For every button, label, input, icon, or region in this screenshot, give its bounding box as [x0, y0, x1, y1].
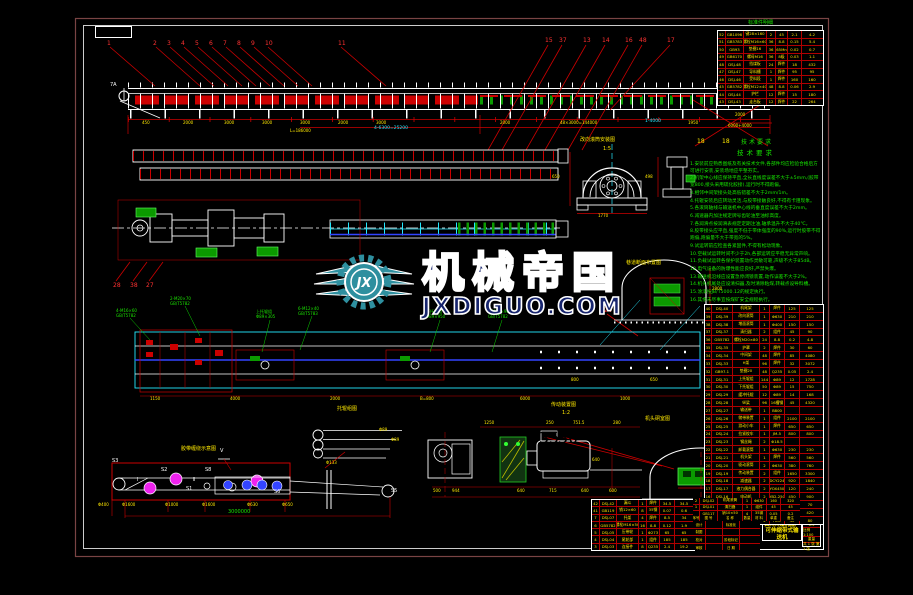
table-cell: 1728	[800, 376, 820, 383]
table-cell	[800, 438, 820, 445]
table-cell: 185	[660, 536, 675, 542]
callout-number: 6	[209, 41, 213, 47]
table-cell: DSJ-35	[712, 344, 733, 351]
callout-number: 4	[181, 41, 185, 47]
table-cell: GB97.1	[712, 368, 733, 375]
table-cell: 标准化	[723, 521, 740, 528]
table-cell: 游动小车	[733, 423, 760, 430]
table-cell: 230	[785, 446, 800, 453]
callout-number: 2	[153, 41, 157, 47]
table-cell: 16槽钢	[770, 399, 785, 406]
dim-label: 4000	[230, 397, 240, 401]
table-cell: 0.02	[788, 46, 802, 53]
table-cell: 18	[705, 478, 712, 485]
note-line: 15.涂漆按JB/T5000.12的规定执行。	[690, 289, 822, 296]
table-cell: 焊件	[770, 305, 785, 312]
table-cell: 14	[785, 391, 800, 398]
dim-label: 498	[645, 175, 653, 179]
table-row: 51GB5783螺栓M16×60368.80.155.4	[718, 38, 823, 46]
table-cell: 23	[705, 438, 712, 445]
table-cell: 0.12	[660, 522, 675, 528]
pulley-diameter: Φ400	[98, 503, 109, 507]
watermark-logo-icon: JX	[312, 252, 416, 312]
table-cell: 21	[705, 454, 712, 461]
table-cell: 8.8	[776, 39, 788, 46]
dim-label: 2000	[330, 397, 340, 401]
table-cell: Φ630	[770, 313, 785, 320]
table-cell: 焊件	[770, 352, 785, 359]
table-row: 39DSJ-39改向滚筒1Φ630210210	[705, 312, 823, 320]
table-cell: DSJ-34	[712, 352, 733, 359]
table-row: 5DSJ-05压带轮1Φ2736565	[592, 528, 694, 535]
table-cell: 45	[781, 505, 800, 511]
table-cell: 数量	[743, 515, 752, 521]
table-cell: 1	[639, 536, 647, 542]
table-cell: 34	[705, 352, 712, 359]
table-cell	[740, 536, 757, 543]
table-cell: 焊件	[647, 500, 660, 506]
table-cell: DSJ-27	[712, 407, 733, 414]
table-cell: GB5782	[726, 84, 744, 91]
watermark: JX 机械帝国 JXDIGUO.COM	[312, 252, 623, 319]
note-line: 6.减速器内加注规定牌号齿轮油至油标高度。	[690, 213, 822, 220]
table-cell: 240	[800, 485, 820, 492]
pulley-diameter: Φ1000	[165, 503, 178, 507]
table-cell: 15	[785, 383, 800, 390]
table-cell: 组件	[770, 470, 785, 477]
table-cell: 125	[800, 305, 820, 312]
table-row: 17DSJ-17液力偶合器2YOX450120240	[705, 484, 823, 492]
table-cell: 920	[785, 478, 800, 485]
table-cell: 缓冲托辊	[733, 391, 760, 398]
table-cell: 设计	[693, 521, 706, 528]
table-cell: 钢丝绳	[733, 438, 760, 445]
table-cell: 2.9	[802, 84, 822, 91]
table-cell: 150	[800, 321, 820, 328]
dim-label: 6000	[520, 397, 530, 401]
table-cell: 受料段	[744, 76, 767, 83]
table-row: 29DSJ-29缓冲托辊12Φ8914168	[705, 390, 823, 398]
table-cell: 50	[718, 46, 726, 53]
table-cell: 5	[592, 529, 600, 535]
small-parts-table: 42DSJ-42漏斗1焊件34.534.541GB119销12×60835钢0.…	[591, 499, 695, 551]
dim-label: 3000	[300, 121, 310, 125]
table-cell: 1	[760, 415, 770, 422]
table-cell: 2.4	[800, 368, 820, 375]
table-cell: GB119	[600, 507, 617, 513]
dim-label: 2000	[338, 121, 348, 125]
table-cell: 650	[785, 423, 800, 430]
table-cell: DSJ-39	[712, 313, 733, 320]
table-row: 序号图 号名 称数量材 料单重备注	[693, 515, 800, 521]
table-cell: 垫圈20	[733, 368, 760, 375]
table-row: 30DSJ-30下托辊组50Φ8915750	[705, 382, 823, 390]
dim-label: 650	[552, 175, 560, 179]
table-row: 20DSJ-20驱动滚筒2Φ630380760	[705, 461, 823, 469]
pulley-label: S2	[161, 468, 167, 473]
table-cell: 2100	[800, 415, 820, 422]
table-cell: DSJ-04	[600, 536, 617, 542]
table-cell: 52	[718, 31, 726, 38]
table-cell: B800	[770, 407, 785, 414]
title-right-cell: 比例 1:100	[803, 527, 820, 536]
table-cell: 焊件	[776, 99, 788, 106]
table-cell: Φ89	[770, 376, 785, 383]
title-block-right: 6.3比例 1:100重量共 1 张 第 1 张	[802, 522, 821, 547]
table-cell: 12	[767, 91, 776, 98]
dim-label: 2000	[735, 113, 745, 117]
bom-table: 40DSJ-40机尾架1焊件12512539DSJ-39改向滚筒1Φ630210…	[704, 304, 824, 525]
table-cell: 0.03	[788, 54, 802, 61]
table-cell: 51	[718, 39, 726, 46]
cad-canvas: JX 机械帝国 JXDIGUO.COM 7A 改向滚筒安装图 1:5 巷道断面布…	[0, 0, 913, 595]
table-cell: 16	[639, 522, 647, 528]
callout-number: 13	[583, 38, 591, 44]
table-cell: DSJ-31	[712, 376, 733, 383]
roller-dim: Φ89	[379, 428, 387, 432]
table-cell: 液力偶合器	[733, 485, 760, 492]
table-cell: 1	[767, 69, 776, 76]
table-cell: 45	[776, 31, 788, 38]
table-cell: GB5782	[600, 522, 617, 528]
table-row: 40DSJ-40机尾架1焊件125125	[705, 305, 823, 312]
table-cell: 组件	[752, 505, 767, 511]
table-cell: 1	[760, 454, 770, 461]
pulley-label: S6	[274, 490, 280, 495]
table-cell: Φ630	[752, 498, 767, 504]
table-cell: 拉紧绞车	[733, 431, 760, 438]
table-cell: 8	[639, 507, 647, 513]
table-cell	[723, 529, 740, 536]
note-line: 14.机头机尾处应设清扫器,及时清除粘煤,转载点设导料槽。	[690, 281, 822, 288]
table-cell: 41	[592, 507, 600, 513]
table-cell: 1.1	[802, 54, 822, 61]
table-cell: 18	[788, 61, 802, 68]
dim-label: 944	[452, 489, 460, 493]
table-cell: 焊件	[776, 69, 788, 76]
table-cell: 35	[705, 344, 712, 351]
table-row: 制图	[693, 528, 760, 536]
pulley-diameter: Φ1600	[122, 503, 135, 507]
note-line: 2.机架中心线应保持平直,全长直线度误差不大于±5mm,(胶带宽800,接头采用…	[690, 175, 822, 189]
table-row: 41GB119销12×60835钢0.070.6	[592, 506, 694, 513]
table-cell: 26	[705, 415, 712, 422]
table-row: 46DSJ-46受料段1焊件160160	[718, 75, 823, 83]
roman-mark: Ⅱ	[193, 478, 195, 483]
belt-title: 胶带缠绕示意图	[181, 447, 216, 452]
callout-number: 27	[146, 283, 154, 289]
note-line: 10.空载试运转时间不少于2h,各部运转应平稳无异常声响。	[690, 251, 822, 258]
table-cell: 尾轮部	[617, 536, 639, 542]
callout-number: 9	[251, 41, 255, 47]
table-cell: 32	[785, 360, 800, 367]
table-cell: Φ273	[647, 529, 660, 535]
table-cell: 49	[718, 54, 726, 61]
title-header-row: 序号图 号名 称数量材 料单重备注	[693, 515, 800, 521]
table-cell: 纵梁	[733, 399, 760, 406]
table-cell: 85	[785, 352, 800, 359]
pulley-diameter: Φ650	[282, 503, 293, 507]
table-cell: 0.2	[785, 336, 800, 343]
table-cell	[785, 438, 800, 445]
table-cell: GB5782	[712, 336, 733, 343]
table-row: 34DSJ-34中间架48焊件854080	[705, 351, 823, 359]
belt-speed-label: V	[220, 449, 223, 454]
table-cell: 增面滚筒	[733, 321, 760, 328]
table-cell	[740, 529, 757, 536]
table-cell: DSJ-40	[712, 305, 733, 312]
table-cell: 1	[760, 305, 770, 312]
table-cell: DSJ-47	[726, 69, 744, 76]
drawing-title: 可伸缩带式输送机	[763, 528, 801, 541]
table-cell: 4320	[800, 399, 820, 406]
table-cell: DSJ-30	[712, 383, 733, 390]
table-cell: H架	[733, 360, 760, 367]
dim-label: 650	[650, 378, 658, 382]
table-row: 1DSJ-01清扫器1组件4545	[693, 504, 800, 511]
dim-label: 640	[517, 489, 525, 493]
table-cell: 185	[675, 536, 693, 542]
table-cell: 46	[718, 76, 726, 83]
callout-number: 38	[130, 283, 138, 289]
pulley-label: S3	[112, 459, 118, 464]
table-cell: 输送带	[733, 407, 760, 414]
table-cell: 45	[785, 329, 800, 336]
table-cell: 230	[800, 446, 820, 453]
table-cell: 审核	[693, 544, 706, 551]
table-cell: 24	[760, 336, 770, 343]
table-cell: 序号	[693, 515, 700, 521]
dim-label: 1150	[150, 397, 160, 401]
table-cell: 1	[767, 76, 776, 83]
table-cell: DSJ-19	[712, 470, 733, 477]
callout-number: 17	[667, 38, 675, 44]
table-row: 42DSJ-42漏斗1焊件34.534.5	[592, 500, 694, 506]
table-cell: 29	[705, 391, 712, 398]
note-line: 8.胶带接头应平直,强度不低于带体强度的90%,运行时胶带不得跑偏,跑偏量不大于…	[690, 228, 822, 242]
table-cell: 机尾滚筒	[718, 498, 743, 504]
table-cell: 19.2	[675, 544, 693, 550]
detail-a-scale: 1:5	[603, 147, 611, 152]
dim-label: 1250	[484, 421, 494, 425]
table-cell: 80	[800, 517, 820, 524]
table-row: 37DSJ-37清扫器2组件4590	[705, 328, 823, 336]
dim-label: 4-6300=25200	[374, 127, 408, 132]
table-cell: 650	[800, 423, 820, 430]
callout-number: 37	[559, 38, 567, 44]
table-cell: DSJ-46	[726, 76, 744, 83]
table-cell: DSJ-42	[600, 500, 617, 506]
table-cell: DCY224	[770, 478, 785, 485]
table-cell: 44	[718, 91, 726, 98]
table-cell: 压带轮	[617, 529, 639, 535]
detail-a-title: 改向滚筒安装图	[580, 138, 615, 143]
table-cell: 36	[767, 46, 776, 53]
callout-number: 15	[545, 38, 553, 44]
table-cell: 2	[693, 498, 700, 504]
table-cell: 24	[767, 61, 776, 68]
table-cell: 37	[705, 329, 712, 336]
table-cell: GB1096	[726, 31, 744, 38]
table-row: 6GB5782螺栓M16×50168.80.121.9	[592, 521, 694, 528]
table-cell: 0.05	[785, 368, 800, 375]
table-cell: 4.2	[802, 31, 822, 38]
table-cell: 264	[802, 99, 822, 106]
table-cell: Φ400	[770, 321, 785, 328]
table-cell: 32	[705, 368, 712, 375]
table-cell	[740, 521, 757, 528]
table-cell: 560	[785, 454, 800, 461]
table-cell: 2100	[785, 415, 800, 422]
table-cell: 48	[760, 352, 770, 359]
table-cell: 12	[767, 99, 776, 106]
table-cell: 34	[675, 515, 693, 521]
table-cell	[785, 407, 800, 414]
table-cell: DSJ-29	[712, 391, 733, 398]
table-cell: 65	[660, 529, 675, 535]
table-cell: 减速器	[733, 478, 760, 485]
table-row: 28DSJ-28纵梁9616槽钢454320	[705, 398, 823, 406]
note-line: 1.安装前应熟悉图纸及有关技术文件,各部件均应检验合格后方可进行安装,安装场地应…	[690, 161, 822, 175]
table-cell: 焊件	[770, 344, 785, 351]
table-cell: 30	[785, 344, 800, 351]
table-cell: 传动装置	[733, 470, 760, 477]
table-row: 32GB97.1垫圈2048Q2350.052.4	[705, 367, 823, 375]
table-cell: 3300	[800, 470, 820, 477]
table-row: 18DSJ-18减速器2DCY2249201840	[705, 477, 823, 485]
table-cell: 45	[767, 505, 781, 511]
note-line: 7.各润滑点按润滑表规定定期注油,轴承温升不大于40℃。	[690, 221, 822, 228]
table-cell: 1	[639, 500, 647, 506]
table-cell: 2	[760, 329, 770, 336]
table-cell: 95	[802, 69, 822, 76]
table-cell: 150	[785, 321, 800, 328]
watermark-site: JXDIGUO.COM	[422, 296, 623, 319]
table-cell: DSJ-22	[712, 446, 733, 453]
table-cell: 2	[760, 485, 770, 492]
table-cell: DSJ-24	[712, 431, 733, 438]
dim-label: 2000	[500, 121, 510, 125]
callout-number: 11	[338, 41, 346, 47]
table-cell: 护栏	[744, 91, 767, 98]
table-cell: 组件	[647, 536, 660, 542]
table-cell: 螺栓M12×40	[744, 84, 767, 91]
table-cell: 48	[767, 84, 776, 91]
table-cell: 制图	[693, 529, 706, 536]
table-cell: DSJ-21	[712, 454, 733, 461]
pulley-diameter: Φ1600	[202, 503, 215, 507]
table-cell: 1.9	[675, 522, 693, 528]
table-cell: 键28×160	[744, 31, 767, 38]
table-cell: 160	[802, 76, 822, 83]
table-cell: 2	[760, 344, 770, 351]
table-cell: 连接件	[617, 544, 639, 550]
table-cell: 2	[760, 478, 770, 485]
pulley-diameter: Φ630	[247, 503, 258, 507]
table-cell: 160	[767, 498, 781, 504]
pulley-label: S8	[205, 468, 211, 473]
table-cell: 45	[718, 84, 726, 91]
drive-scale: 1:2	[562, 411, 570, 416]
table-cell: DSJ-18	[712, 478, 733, 485]
table-cell: 名 称	[718, 515, 743, 521]
table-cell: 0.06	[788, 84, 802, 91]
table-cell: 22	[705, 446, 712, 453]
dim-label: 640	[592, 458, 600, 462]
table-cell: 12	[785, 376, 800, 383]
table-cell: Q235	[647, 544, 660, 550]
table-cell: 改向滚筒	[733, 313, 760, 320]
table-cell: 1	[760, 431, 770, 438]
dim-label: 6000+4000	[728, 124, 752, 128]
dim-label: 2000	[183, 121, 193, 125]
table-cell: DSJ-23	[712, 438, 733, 445]
table-cell: 800	[800, 431, 820, 438]
table-cell: 焊件	[647, 515, 660, 521]
table-cell: 7	[592, 515, 600, 521]
table-cell: JM-5	[770, 431, 785, 438]
table-cell	[706, 536, 723, 543]
note-line: 16.其余未尽事宜按煤矿安全规程执行。	[690, 297, 822, 304]
table-cell: DSJ-03	[600, 544, 617, 550]
dim-label: 3000	[224, 121, 234, 125]
table-cell: DSJ-05	[600, 529, 617, 535]
table-cell: 40	[705, 305, 712, 312]
table-row: 26DSJ-26储带装置1组件21002100	[705, 414, 823, 422]
callout-number: 35	[539, 430, 559, 446]
table-cell: 4	[639, 515, 647, 521]
table-row: 25DSJ-25游动小车1焊件650650	[705, 422, 823, 430]
table-cell: 下托辊组	[733, 383, 760, 390]
table-cell: DSJ-07	[600, 515, 617, 521]
table-cell: 阶段标记	[723, 536, 740, 543]
table-cell: Φ89	[770, 383, 785, 390]
table-cell: 垫圈16	[744, 46, 767, 53]
drive-title: 传动装置图	[551, 403, 576, 408]
table-cell: 8	[639, 544, 647, 550]
table-cell: 420	[800, 509, 820, 516]
table-cell: 560	[800, 454, 820, 461]
table-cell	[800, 407, 820, 414]
note-line: 11.负载试运转各保护装置动作灵敏可靠,声级不大于85dB。	[690, 258, 822, 265]
table-cell: DSJ-28	[712, 399, 733, 406]
rollers-title: 托辊组图	[337, 407, 357, 412]
table-cell: 47	[718, 69, 726, 76]
table-cell: 8.5	[660, 515, 675, 521]
dim-label: 2800	[712, 287, 722, 291]
table-cell: 320	[781, 498, 800, 504]
table-cell: Φ89	[770, 391, 785, 398]
table-cell: 1	[760, 423, 770, 430]
table-cell: 螺栓M20×80	[733, 336, 760, 343]
table-row: 2DSJ-02机尾滚筒1Φ630160320	[693, 498, 800, 504]
table-row: 设计标准化	[693, 521, 760, 528]
table-cell: 432	[802, 61, 822, 68]
pulley-label: S1	[186, 487, 192, 492]
table-row: 7DSJ-07托架4焊件8.534	[592, 514, 694, 521]
tunnel-d-title: 机头硐室图	[645, 417, 670, 422]
table-cell: 3072	[800, 360, 820, 367]
table-cell: 180	[802, 91, 822, 98]
table-cell: 42	[592, 500, 600, 506]
note-line: 5.各滚筒轴线与输送机中心线的垂直度误差不大于2mm。	[690, 205, 822, 212]
table-cell: 校对	[693, 536, 706, 543]
notes-title: 技术要求	[690, 149, 822, 159]
table-cell: 导料槽	[744, 69, 767, 76]
dim-label: 250	[546, 421, 554, 425]
table-cell: 1650	[785, 470, 800, 477]
table-cell: 托架	[617, 515, 639, 521]
